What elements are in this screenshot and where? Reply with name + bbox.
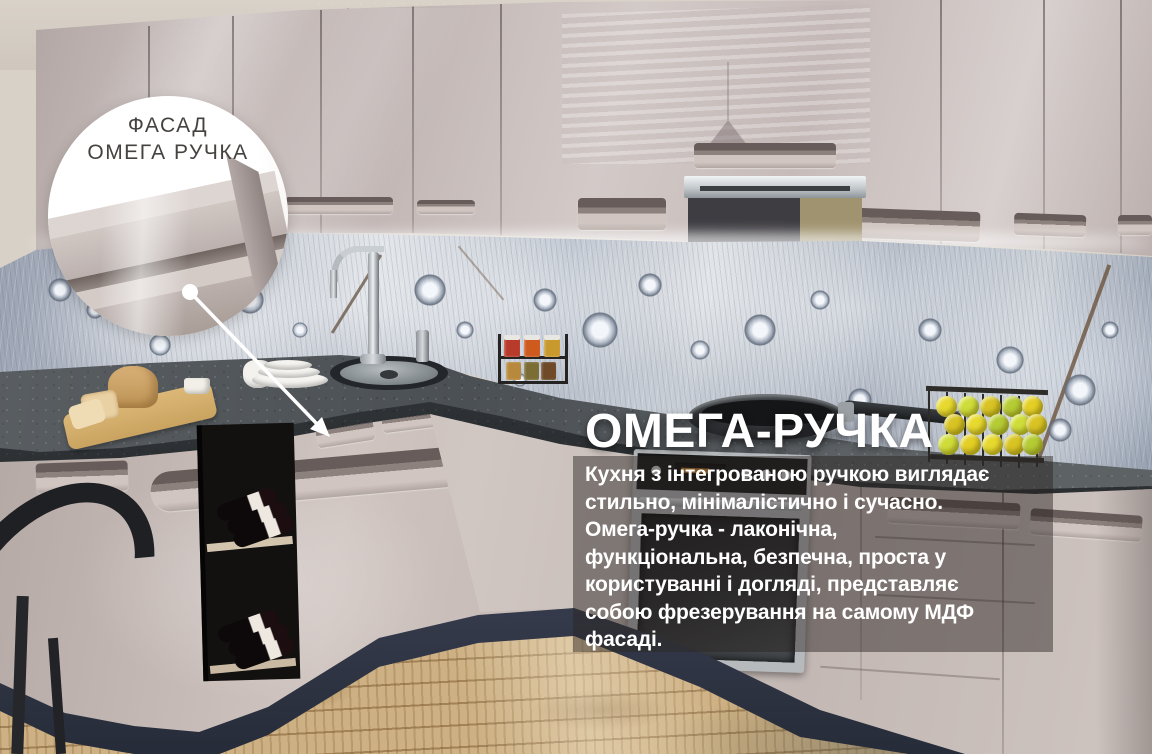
kitchen-promo-image: ОМЕГА-РУЧКА Кухня з інтегрованою ручкою … xyxy=(0,0,1152,754)
callout-arrow xyxy=(0,0,1152,754)
